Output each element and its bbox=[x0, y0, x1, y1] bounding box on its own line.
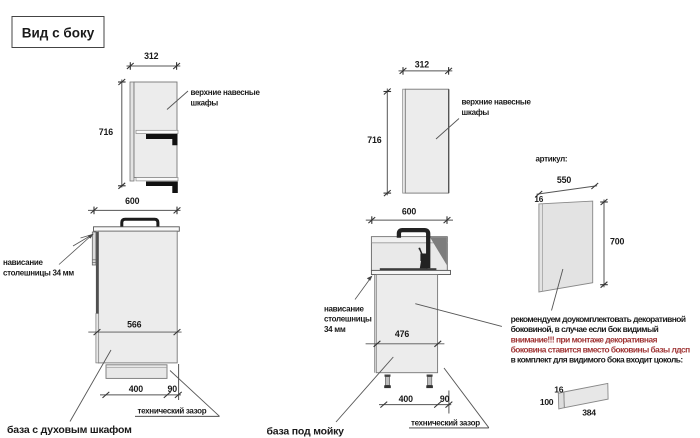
svg-text:нависание: нависание bbox=[3, 258, 43, 267]
svg-text:шкафы: шкафы bbox=[191, 98, 219, 107]
svg-text:технический зазор: технический зазор bbox=[138, 407, 207, 416]
svg-text:верхние навесные: верхние навесные bbox=[462, 98, 532, 107]
svg-text:артикул:: артикул: bbox=[536, 155, 568, 164]
svg-text:верхние навесные: верхние навесные bbox=[191, 88, 261, 97]
svg-text:716: 716 bbox=[367, 135, 381, 145]
svg-text:600: 600 bbox=[125, 196, 139, 206]
svg-text:600: 600 bbox=[402, 207, 416, 217]
svg-text:550: 550 bbox=[557, 175, 571, 185]
svg-text:100: 100 bbox=[540, 397, 554, 407]
svg-text:боковиной, в случае если бок в: боковиной, в случае если бок видимый bbox=[511, 324, 659, 334]
svg-text:нависание: нависание bbox=[324, 305, 364, 314]
svg-text:внимание!!! при монтаже декора: внимание!!! при монтаже декоративная bbox=[511, 334, 658, 344]
svg-text:716: 716 bbox=[99, 127, 113, 137]
svg-text:база с духовым шкафом: база с духовым шкафом bbox=[7, 424, 132, 436]
svg-text:база под мойку: база под мойку bbox=[267, 426, 345, 438]
svg-text:400: 400 bbox=[129, 384, 143, 394]
svg-text:312: 312 bbox=[415, 60, 429, 70]
svg-text:16: 16 bbox=[534, 194, 543, 204]
svg-text:столешницы 34 мм: столешницы 34 мм bbox=[3, 268, 74, 277]
svg-text:рекомендуем доукомплектовать д: рекомендуем доукомплектовать декоративно… bbox=[511, 314, 686, 324]
svg-text:Вид с боку: Вид с боку bbox=[22, 26, 95, 41]
svg-text:технический зазор: технический зазор bbox=[411, 418, 480, 427]
svg-text:90: 90 bbox=[168, 384, 178, 394]
svg-text:боковина ставится вместо боков: боковина ставится вместо боковины базы л… bbox=[511, 344, 691, 354]
svg-text:столешницы: столешницы bbox=[324, 315, 372, 324]
svg-text:34 мм: 34 мм bbox=[324, 325, 346, 334]
svg-text:16: 16 bbox=[554, 385, 563, 395]
svg-text:476: 476 bbox=[395, 329, 409, 339]
svg-text:90: 90 bbox=[440, 394, 450, 404]
svg-text:566: 566 bbox=[127, 319, 141, 329]
svg-text:312: 312 bbox=[144, 51, 158, 61]
svg-text:700: 700 bbox=[610, 237, 624, 247]
svg-text:400: 400 bbox=[399, 394, 413, 404]
svg-text:в комплект для видимого бока в: в комплект для видимого бока входит цоко… bbox=[511, 355, 683, 365]
svg-text:шкафы: шкафы bbox=[462, 108, 490, 117]
svg-text:384: 384 bbox=[582, 408, 596, 418]
